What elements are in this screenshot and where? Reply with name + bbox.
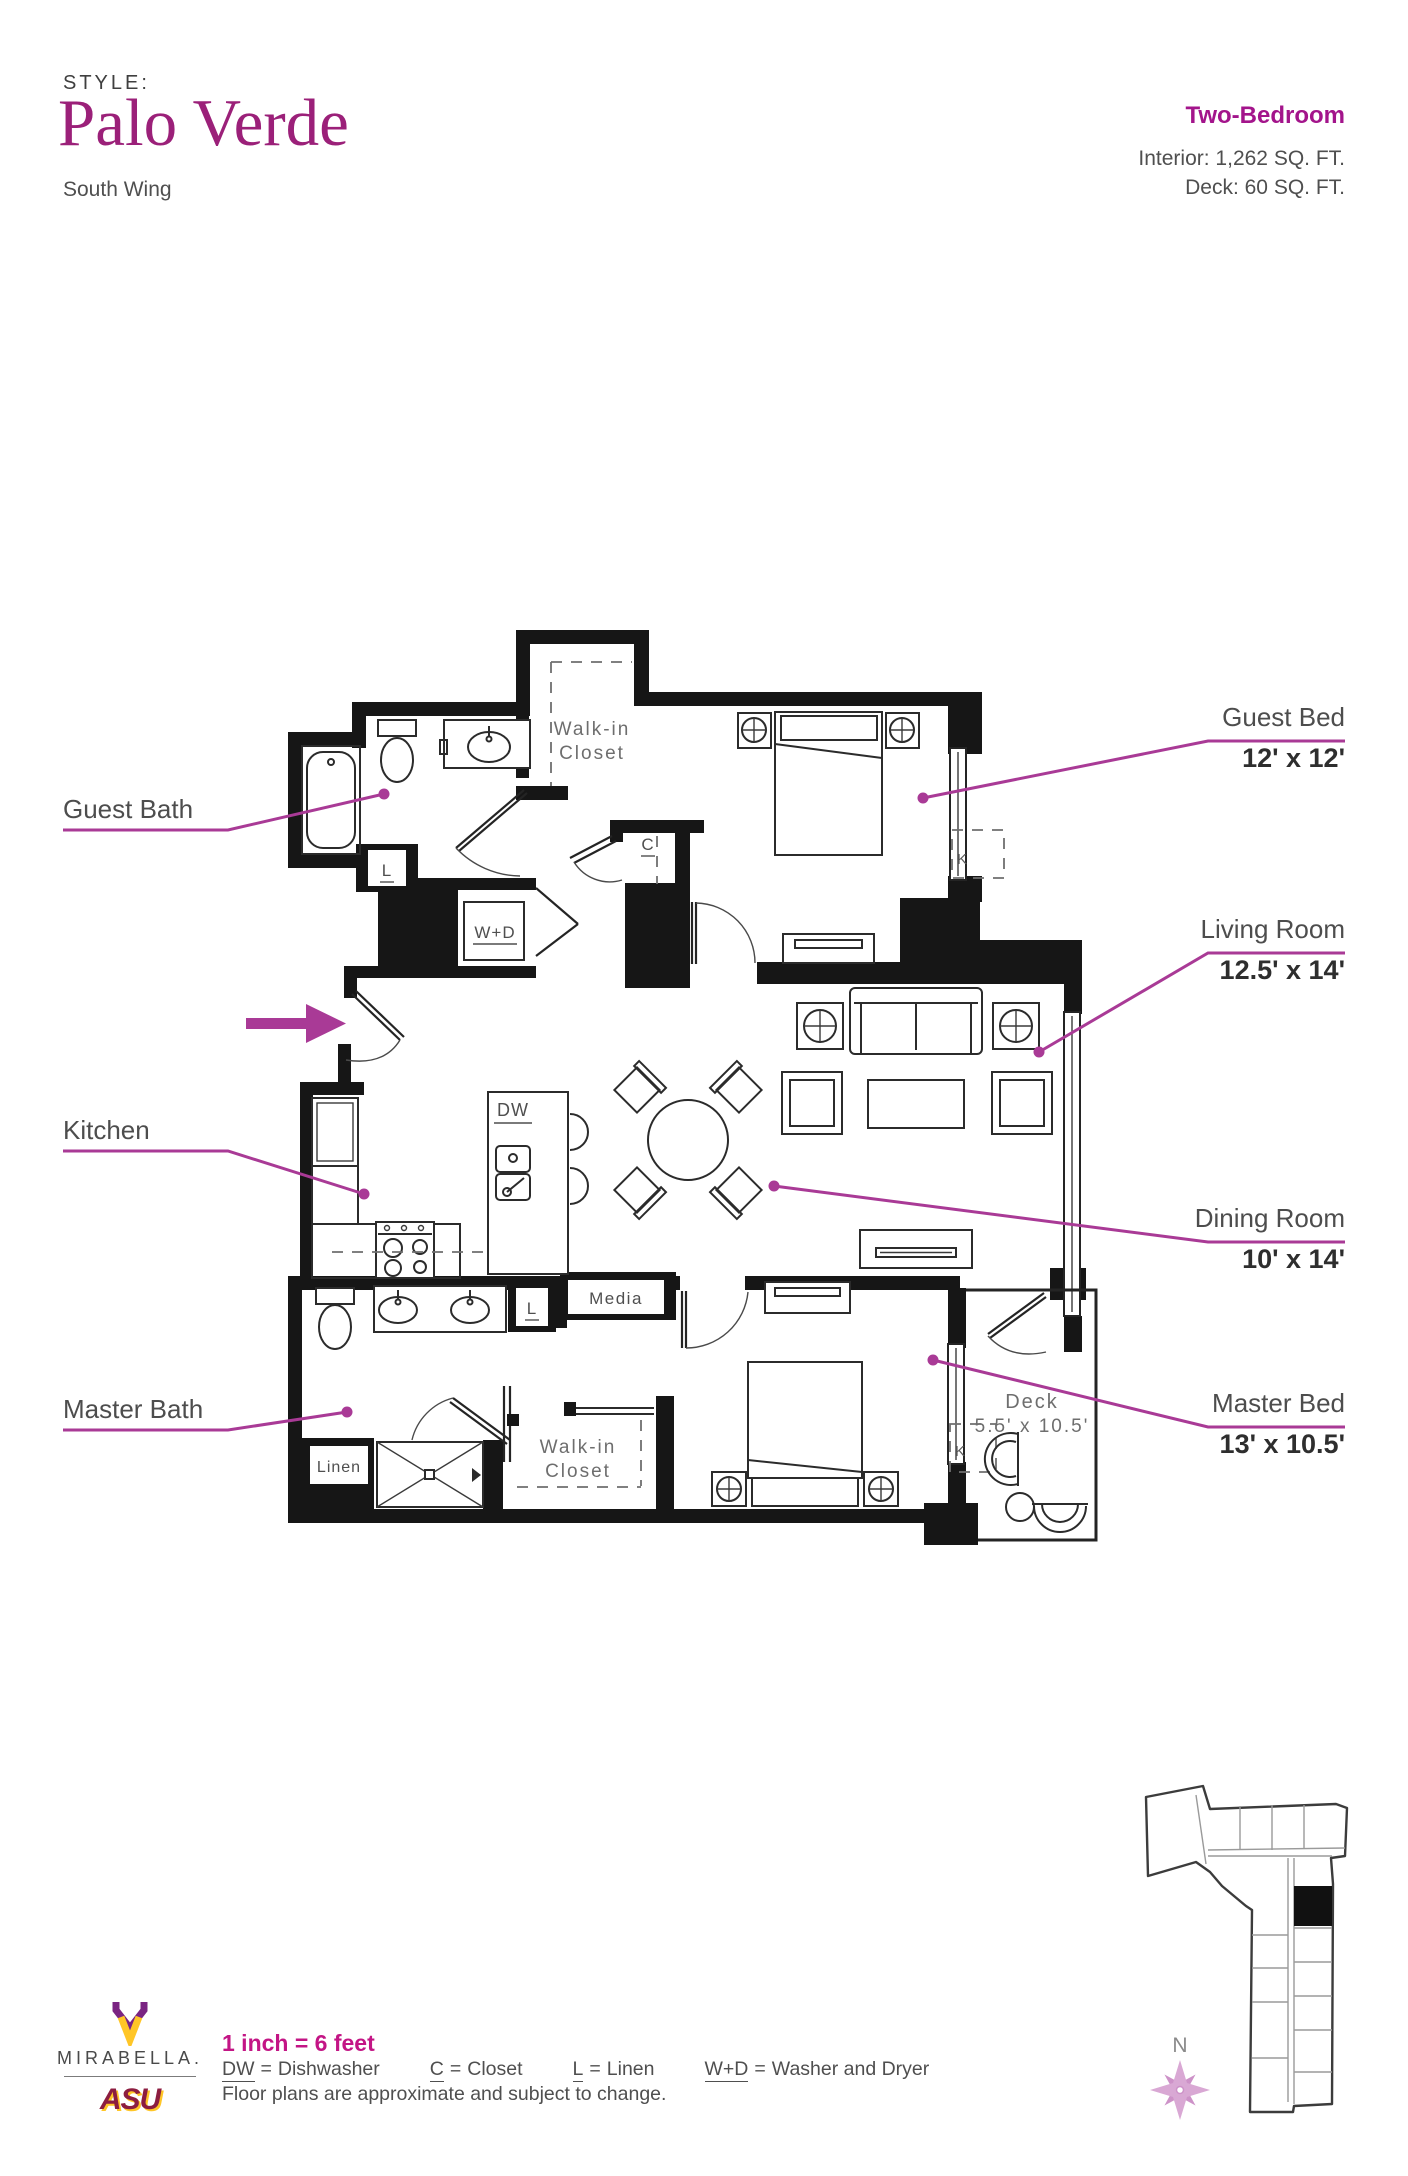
dresser xyxy=(783,934,874,963)
island-stool xyxy=(570,1168,588,1204)
dining-chair xyxy=(612,1061,666,1115)
guest-bath-door xyxy=(456,790,527,876)
closet-abbr-label: C xyxy=(641,835,654,854)
callout-label: Living Room xyxy=(1200,912,1345,946)
bed-master xyxy=(748,1362,862,1506)
mirabella-wordmark: MIRABELLA. xyxy=(56,2048,204,2069)
coffee-table xyxy=(868,1080,964,1128)
living-room-furniture xyxy=(782,988,1052,1268)
legend-item: W+D=Washer and Dryer xyxy=(705,2059,930,2080)
page-title: Palo Verde xyxy=(58,88,349,158)
entry-arrow-icon xyxy=(246,1004,346,1043)
guest-bed-door xyxy=(692,902,755,964)
branding-block: MIRABELLA. ASU xyxy=(56,1996,204,2117)
legend-items: DW=Dishwasher C=Closet L=Linen W+D=Washe… xyxy=(222,2059,929,2080)
unit-highlight xyxy=(1294,1886,1332,1926)
brand-divider xyxy=(64,2076,196,2077)
callout-label: Kitchen xyxy=(63,1113,150,1147)
floor-plan-drawing: Walk-in Closet L W+D C DW Media L Linen … xyxy=(0,0,1408,2176)
legend-item: C=Closet xyxy=(430,2059,523,2080)
kitchen-counter-left xyxy=(312,1166,358,1224)
shower xyxy=(377,1442,483,1507)
deck-chair xyxy=(985,1432,1018,1486)
vanity-master xyxy=(374,1286,506,1332)
kitchen-fixtures xyxy=(312,1092,588,1278)
unit-summary: Two-Bedroom Interior: 1,262 SQ. FT. Deck… xyxy=(1138,102,1345,202)
wing-subtitle: South Wing xyxy=(63,178,172,202)
dining-chair xyxy=(612,1165,666,1219)
linen-abbr-label: L xyxy=(382,861,392,880)
master-wic-label-line1: Walk-in xyxy=(540,1437,617,1458)
master-bath-sliding-door xyxy=(504,1386,519,1462)
dishwasher-label: DW xyxy=(497,1100,529,1120)
linen-closet-label: Linen xyxy=(317,1459,361,1476)
nightstand xyxy=(864,1472,898,1506)
north-label: N xyxy=(1172,2034,1187,2057)
callout-master-bed: Master Bed 13' x 10.5' xyxy=(1212,1386,1345,1461)
floor-plan-page: Walk-in Closet L W+D C DW Media L Linen … xyxy=(0,0,1408,2176)
deck-table xyxy=(1006,1493,1034,1521)
toilet-guest xyxy=(378,720,416,782)
legend-item: L=Linen xyxy=(573,2059,655,2080)
window-k-label: K xyxy=(957,851,967,868)
scale-note: 1 inch = 6 feet xyxy=(222,2031,929,2055)
unit-type: Two-Bedroom xyxy=(1138,102,1345,130)
dresser xyxy=(765,1282,850,1313)
callout-guest-bed: Guest Bed 12' x 12' xyxy=(1222,700,1345,775)
callout-label: Guest Bath xyxy=(63,792,193,826)
guest-wic-label-line2: Closet xyxy=(559,743,625,764)
callout-master-bath: Master Bath xyxy=(63,1392,203,1426)
callout-label: Master Bed xyxy=(1212,1386,1345,1420)
site-map xyxy=(1146,1786,1347,2112)
sideboard xyxy=(860,1230,972,1268)
callout-dims: 10' x 14' xyxy=(1195,1242,1345,1276)
entry-door xyxy=(346,991,404,1061)
guest-wic-label-line1: Walk-in xyxy=(554,719,631,740)
mirabella-logo xyxy=(104,1996,156,2046)
window-k-label: K xyxy=(955,1443,965,1460)
compass-rose-icon: N xyxy=(1149,2034,1211,2121)
legend: 1 inch = 6 feet DW=Dishwasher C=Closet L… xyxy=(222,2031,929,2105)
dining-chair xyxy=(710,1061,764,1115)
callout-dims: 13' x 10.5' xyxy=(1212,1427,1345,1461)
guest-bedroom-furniture xyxy=(738,712,919,963)
dining-table xyxy=(648,1100,728,1180)
deck-sqft: Deck: 60 SQ. FT. xyxy=(1138,173,1345,202)
nightstand xyxy=(886,713,919,748)
interior-sqft: Interior: 1,262 SQ. FT. xyxy=(1138,144,1345,173)
asu-logo: ASU xyxy=(100,2083,160,2117)
island-stool xyxy=(570,1114,588,1150)
callout-label: Guest Bed xyxy=(1222,700,1345,734)
deck-chair xyxy=(1032,1504,1088,1532)
deck-label: Deck xyxy=(1005,1391,1059,1413)
callout-dims: 12.5' x 14' xyxy=(1200,953,1345,987)
refrigerator xyxy=(312,1098,358,1166)
callout-guest-bath: Guest Bath xyxy=(63,792,193,826)
windows xyxy=(948,748,1080,1472)
nightstand xyxy=(712,1472,746,1506)
toilet-master xyxy=(316,1288,354,1349)
shower-door xyxy=(412,1398,510,1444)
bed-guest xyxy=(775,712,882,855)
dining-chair xyxy=(710,1165,764,1219)
master-bedroom-furniture xyxy=(682,1282,898,1506)
callout-leader-lines xyxy=(63,741,1345,1430)
callout-label: Master Bath xyxy=(63,1392,203,1426)
media-label: Media xyxy=(589,1289,643,1308)
callout-dining-room: Dining Room 10' x 14' xyxy=(1195,1201,1345,1276)
bathtub xyxy=(302,746,360,854)
deck-dims-label: 5.5' x 10.5' xyxy=(975,1416,1090,1437)
dining-set xyxy=(612,1061,763,1219)
deck-door xyxy=(988,1293,1046,1354)
master-wic-label-line2: Closet xyxy=(545,1461,611,1482)
vanity-guest xyxy=(440,720,530,768)
callout-kitchen: Kitchen xyxy=(63,1113,150,1147)
callout-label: Dining Room xyxy=(1195,1201,1345,1235)
plan-labels: Walk-in Closet L W+D C DW Media L Linen … xyxy=(317,719,1089,1482)
linen-abbr-label: L xyxy=(527,1299,537,1318)
sofa xyxy=(850,988,982,1054)
armchair xyxy=(992,1072,1052,1134)
living-room-window xyxy=(1064,1012,1080,1316)
armchair xyxy=(782,1072,842,1134)
nightstand xyxy=(738,713,771,748)
callout-living-room: Living Room 12.5' x 14' xyxy=(1200,912,1345,987)
floor-lamp xyxy=(797,1003,843,1049)
master-bed-door xyxy=(682,1291,748,1348)
washer-dryer-label: W+D xyxy=(474,923,515,942)
range xyxy=(376,1222,434,1278)
floor-lamp xyxy=(993,1003,1039,1049)
callout-dims: 12' x 12' xyxy=(1222,741,1345,775)
legend-item: DW=Dishwasher xyxy=(222,2059,380,2080)
disclaimer: Floor plans are approximate and subject … xyxy=(222,2084,929,2105)
